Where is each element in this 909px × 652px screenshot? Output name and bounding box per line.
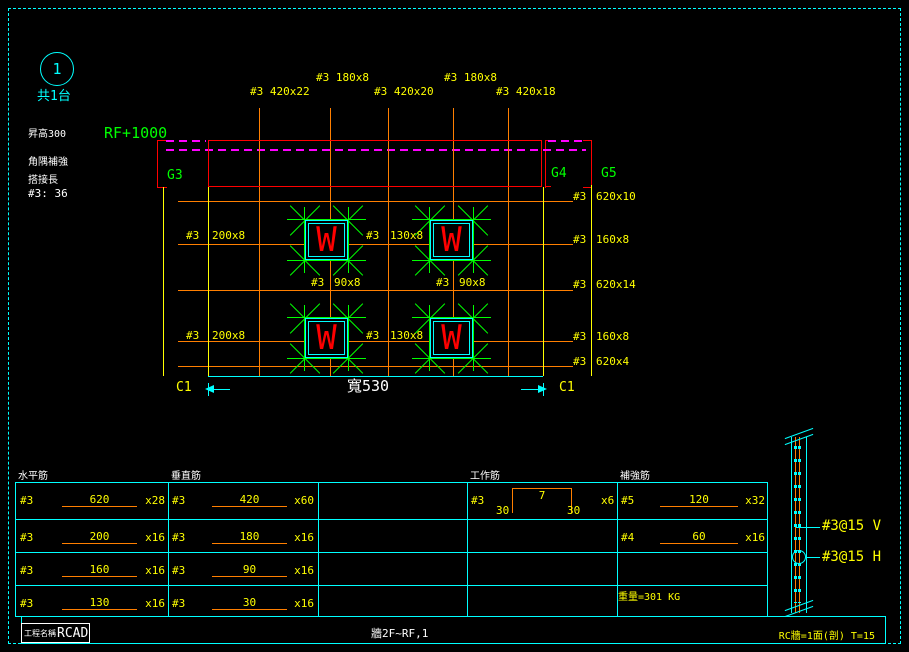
grid-bracket — [591, 140, 592, 188]
rebar-label: 90x8 — [459, 277, 486, 288]
horizontal-rebar-line — [178, 201, 573, 202]
cell-count: x16 — [138, 532, 165, 543]
column-mark-left: C1 — [176, 381, 192, 394]
cell-length: 30 — [212, 597, 287, 608]
opening-mark: W — [306, 319, 347, 357]
unit-count-label: 共1台 — [37, 90, 71, 103]
dimension-arrow-right-icon — [538, 385, 547, 393]
section-face-line — [806, 437, 807, 613]
dimension-arrow-left-icon — [205, 385, 214, 393]
opening-bottom-bar — [287, 358, 366, 359]
rebar-label: #3 — [311, 277, 324, 288]
cell-bar: #3 — [172, 565, 185, 576]
cell-count: x16 — [287, 532, 314, 543]
opening-side-bar — [348, 207, 349, 273]
length-line — [62, 543, 137, 544]
rebar-label: #3 — [573, 279, 586, 290]
rebar-label: 200x8 — [212, 330, 245, 341]
opening-bottom-bar — [412, 260, 491, 261]
rebar-label: 90x8 — [334, 277, 361, 288]
cell-count: x28 — [138, 495, 165, 506]
grid-bracket — [157, 140, 158, 188]
rebar-label: 130x8 — [390, 330, 423, 341]
wall-opening: W — [305, 220, 348, 260]
grid-line — [591, 185, 592, 376]
dimension-line — [212, 389, 230, 390]
horizontal-rebar-line — [178, 366, 573, 367]
vertical-bar-label: #3@15 V — [822, 519, 881, 533]
table-header-work: 工作筋 — [470, 472, 500, 482]
length-line — [212, 609, 287, 610]
horizontal-bar-marker-icon — [792, 550, 806, 564]
grid-line — [543, 187, 544, 376]
cell-count: x16 — [287, 598, 314, 609]
rebar-label: #3 — [573, 191, 586, 202]
cell-bar: #3 — [20, 565, 33, 576]
rebar-label: #3 — [186, 330, 199, 341]
rebar-label: 620x14 — [596, 279, 636, 290]
opening-bottom-bar — [287, 260, 366, 261]
horizontal-rebar-line — [178, 290, 573, 291]
rebar-label: 620x10 — [596, 191, 636, 202]
opening-bottom-bar — [412, 358, 491, 359]
detail-callout-circle: 1 — [40, 52, 74, 86]
work-top-length: 7 — [512, 490, 572, 501]
length-line — [212, 543, 287, 544]
length-line — [62, 609, 137, 610]
rebar-label: 160x8 — [596, 234, 629, 245]
rebar-label: #3 — [436, 277, 449, 288]
grid-bracket — [583, 187, 591, 188]
rebar-label: 620x4 — [596, 356, 629, 367]
rebar-label: #3 420x20 — [374, 86, 434, 97]
rebar-label: 200x8 — [212, 230, 245, 241]
leader-line — [806, 557, 820, 558]
cell-count: x16 — [287, 565, 314, 576]
rebar-label: 130x8 — [390, 230, 423, 241]
section-rebar-ticks — [794, 446, 797, 603]
section-rebar-ticks — [798, 446, 801, 603]
column-mark-right: C1 — [559, 381, 575, 394]
slab-dash-line — [166, 140, 206, 142]
grid-bracket — [157, 187, 167, 188]
table-row-border — [15, 482, 768, 483]
table-header-horizontal: 水平筋 — [18, 472, 48, 482]
grid-label-g5: G5 — [601, 167, 617, 180]
opening-side-bar — [348, 305, 349, 371]
cell-count: x32 — [737, 495, 765, 506]
wall-opening: W — [430, 220, 473, 260]
rebar-label: #3 — [366, 330, 379, 341]
work-leg-right: 30 — [567, 505, 580, 516]
opening-side-bar — [473, 305, 474, 371]
opening-mark: W — [306, 221, 347, 259]
length-line — [660, 543, 738, 544]
rebar-label: #3 180x8 — [444, 72, 497, 83]
cell-length: 200 — [62, 531, 137, 542]
cell-length: 60 — [660, 531, 738, 542]
table-column-border — [467, 482, 468, 617]
width-dimension: 寬530 — [347, 379, 389, 394]
table-column-border — [168, 482, 169, 617]
grid-label-g3: G3 — [167, 169, 183, 182]
lap-length-value: #3: 36 — [28, 188, 68, 199]
rebar-label: #3 — [573, 331, 586, 342]
rebar-label: #3 420x18 — [496, 86, 556, 97]
cell-length: 120 — [660, 494, 738, 505]
sheet-name: 牆2F~RF,1 — [371, 628, 428, 639]
cell-bar: #3 — [20, 532, 33, 543]
cell-bar: #5 — [621, 495, 634, 506]
horizontal-rebar-line — [178, 244, 573, 245]
table-column-border — [767, 482, 768, 617]
length-line — [62, 506, 137, 507]
detail-number: 1 — [52, 62, 61, 77]
section-face-line — [791, 437, 792, 613]
opening-mark: W — [431, 221, 472, 259]
cell-length: 420 — [212, 494, 287, 505]
cell-bar: #3 — [20, 495, 33, 506]
rebar-label: #3 — [186, 230, 199, 241]
cell-bar: #4 — [621, 532, 634, 543]
cell-length: 620 — [62, 494, 137, 505]
table-row-border — [15, 519, 768, 520]
beam-outline — [208, 140, 542, 187]
corner-reinforce-note: 角隅補強 — [28, 158, 68, 168]
table-row-border — [15, 585, 768, 586]
cell-length: 130 — [62, 597, 137, 608]
opening-mark: W — [431, 319, 472, 357]
lap-length-title: 搭接長 — [28, 176, 58, 186]
cad-sheet: 1 共1台 昇高300 角隅補強 搭接長 #3: 36 RF+1000 G3 G… — [0, 0, 909, 652]
rebar-label: #3 420x22 — [250, 86, 310, 97]
table-row-border — [15, 552, 768, 553]
wall-end-line — [545, 186, 551, 187]
work-leg-left: 30 — [496, 505, 509, 516]
cell-bar: #3 — [172, 495, 185, 506]
cell-count: x6 — [601, 495, 614, 506]
rebar-label: #3 — [366, 230, 379, 241]
cell-length: 90 — [212, 564, 287, 575]
rebar-label: 160x8 — [596, 331, 629, 342]
rebar-label: #3 — [573, 356, 586, 367]
dimension-line — [521, 389, 539, 390]
length-line — [660, 506, 738, 507]
length-line — [212, 576, 287, 577]
slab-dash-line — [548, 140, 586, 142]
table-header-reinforce: 補強筋 — [620, 472, 650, 482]
project-value: RCAD — [57, 627, 88, 640]
wall-opening: W — [305, 318, 348, 358]
wall-opening: W — [430, 318, 473, 358]
cell-count: x16 — [737, 532, 765, 543]
rebar-label: #3 180x8 — [316, 72, 369, 83]
level-label: RF+1000 — [104, 126, 167, 141]
cell-count: x16 — [138, 565, 165, 576]
cell-bar: #3 — [172, 532, 185, 543]
cell-bar: #3 — [20, 598, 33, 609]
cell-count: x16 — [138, 598, 165, 609]
table-column-border — [15, 482, 16, 617]
horizontal-bar-label: #3@15 H — [822, 550, 881, 564]
raise-height-note: 昇高300 — [28, 130, 66, 140]
cell-length: 180 — [212, 531, 287, 542]
table-column-border — [318, 482, 319, 617]
project-label: 工程名稱 — [24, 630, 56, 638]
wall-end-line — [545, 140, 546, 188]
cell-bar: #3 — [471, 495, 484, 506]
grid-line — [163, 187, 164, 376]
rebar-label: #3 — [573, 234, 586, 245]
cell-length: 160 — [62, 564, 137, 575]
weight-note: 重量=301 KG — [618, 593, 680, 603]
cell-count: x60 — [287, 495, 314, 506]
cell-bar: #3 — [172, 598, 185, 609]
length-line — [212, 506, 287, 507]
opening-side-bar — [473, 207, 474, 273]
sheet-note: RC牆=1面(剖) T=15 — [700, 632, 875, 642]
grid-label-g4: G4 — [551, 167, 567, 180]
length-line — [62, 576, 137, 577]
grid-line — [208, 187, 209, 376]
table-header-vertical: 垂直筋 — [171, 472, 201, 482]
table-row-border — [15, 616, 768, 617]
